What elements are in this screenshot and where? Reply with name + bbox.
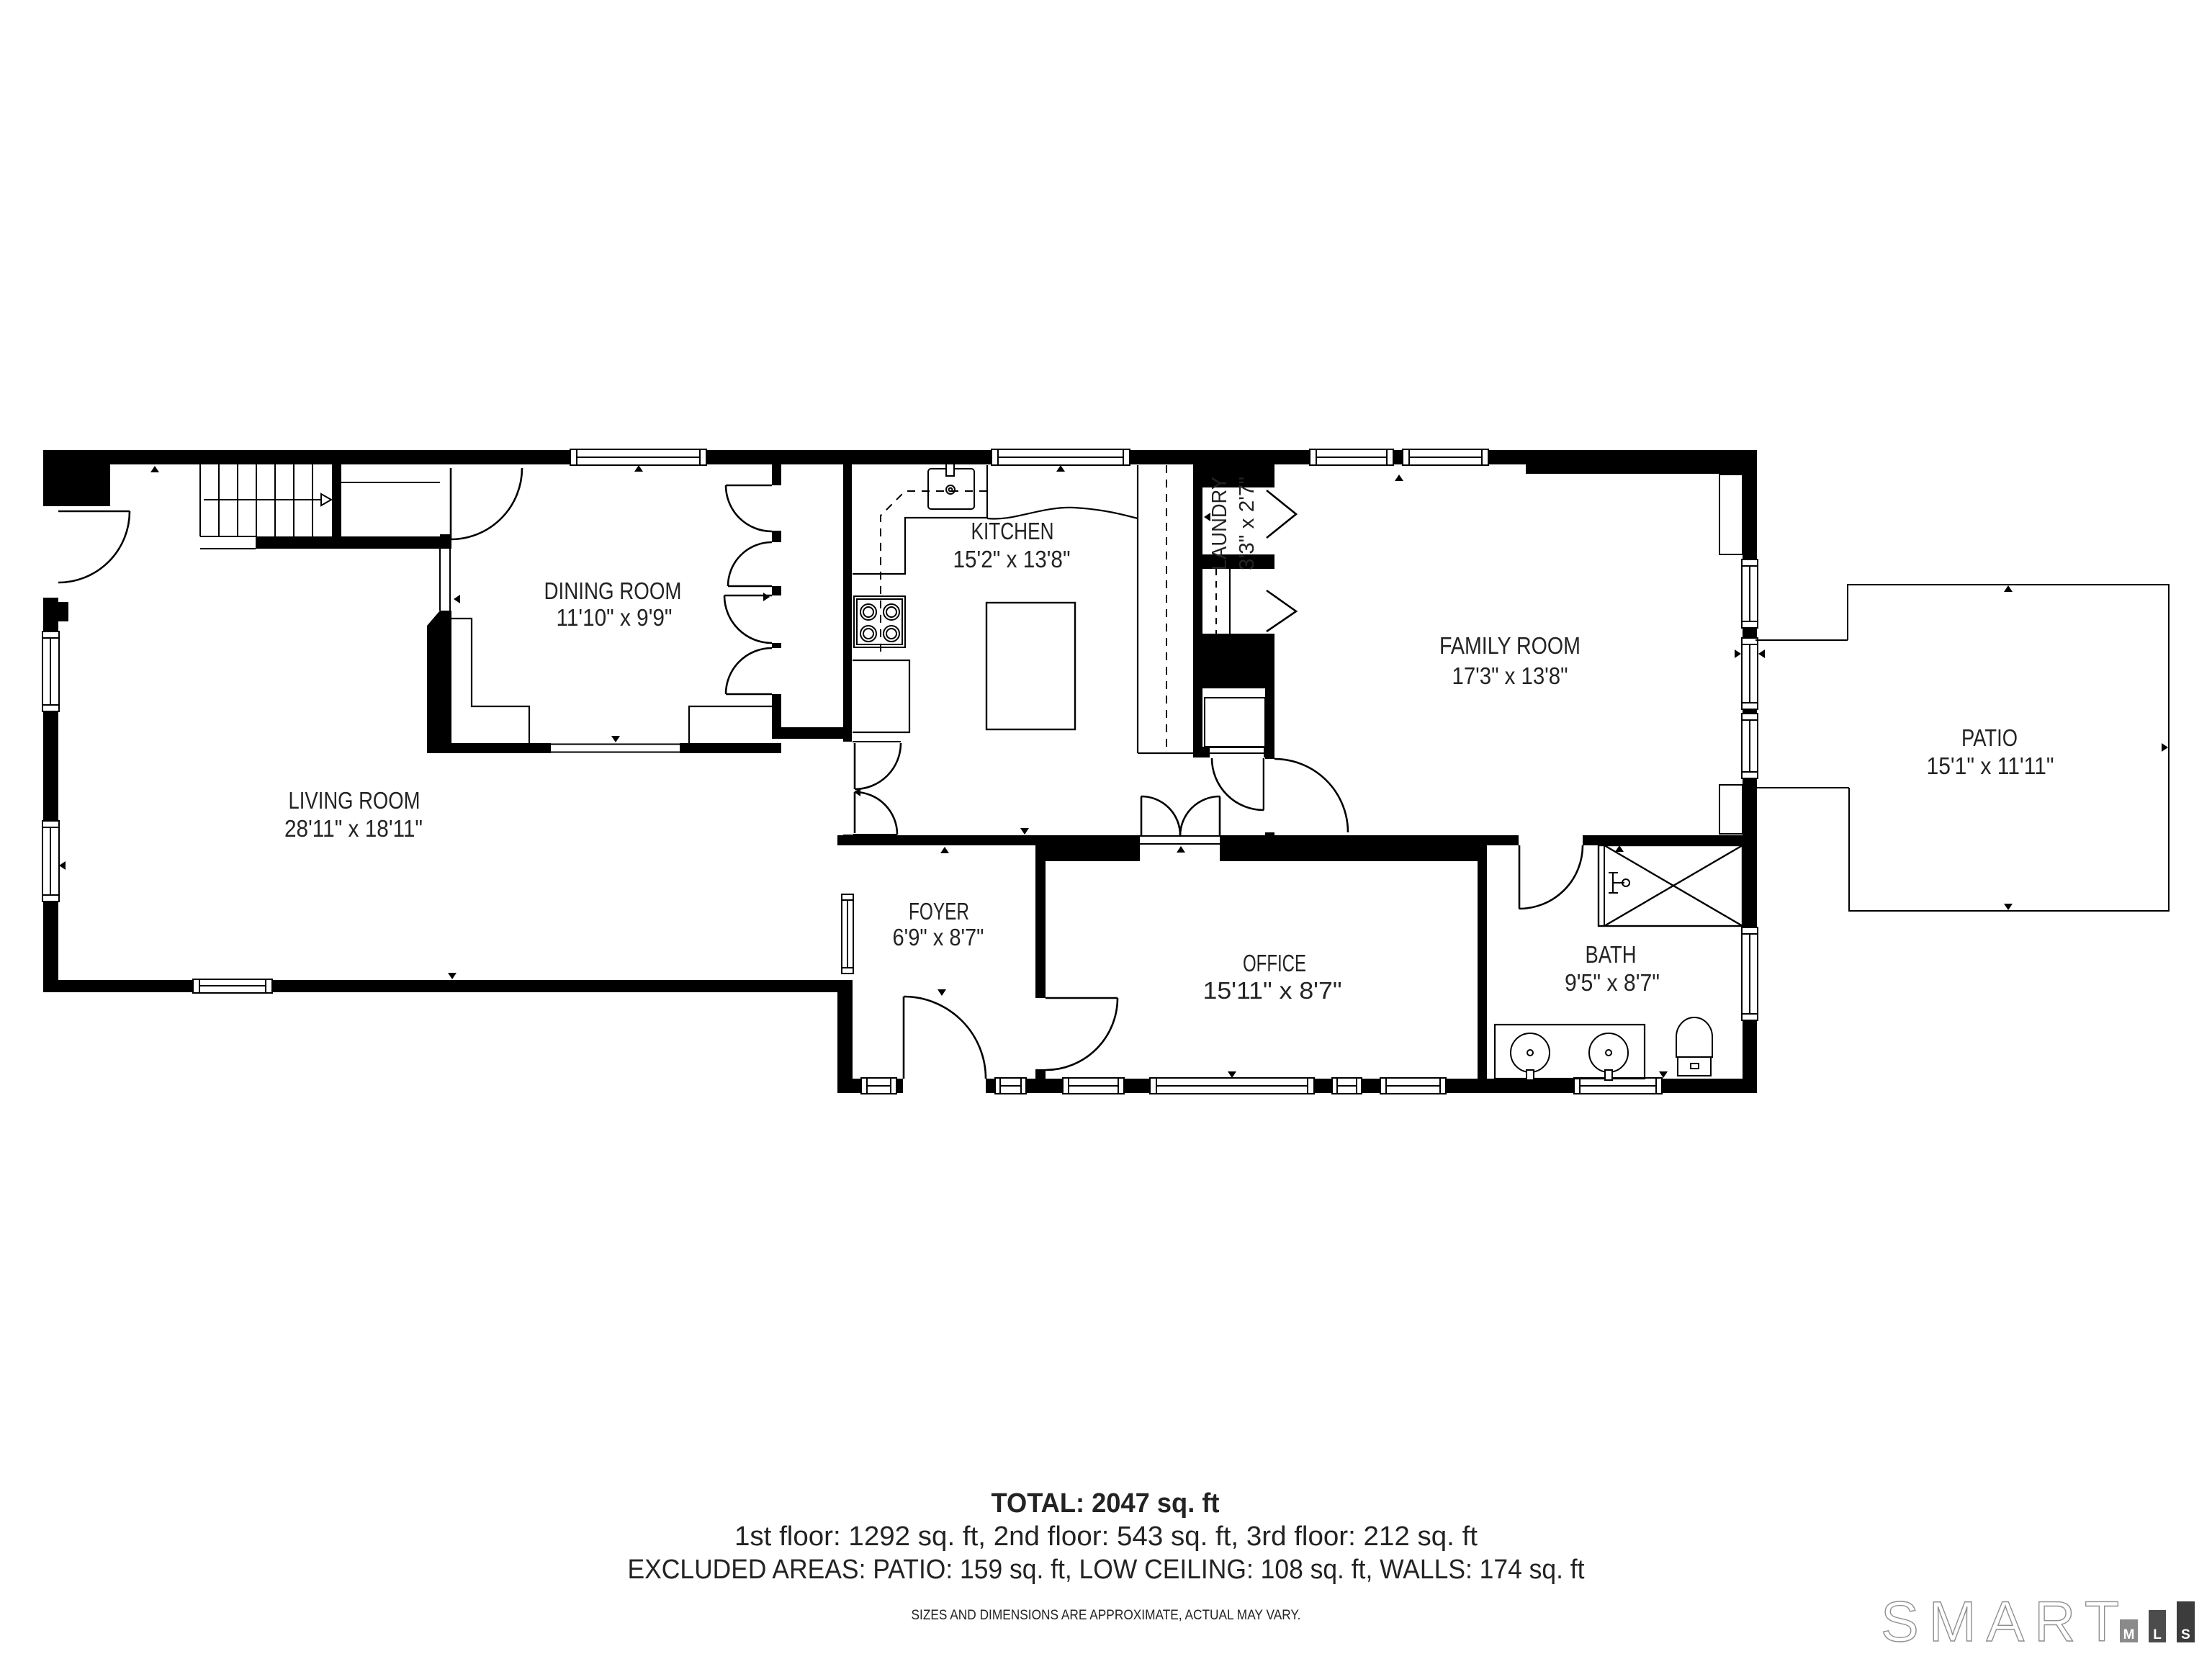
svg-text:DINING ROOM: DINING ROOM xyxy=(544,577,682,604)
svg-text:11'10" x 9'9": 11'10" x 9'9" xyxy=(557,604,673,631)
svg-text:SIZES AND DIMENSIONS ARE APPRO: SIZES AND DIMENSIONS ARE APPROXIMATE, AC… xyxy=(912,1608,1301,1623)
svg-text:BATH: BATH xyxy=(1586,941,1637,968)
svg-text:6'9" x 8'7": 6'9" x 8'7" xyxy=(893,924,984,950)
svg-text:15'11" x 8'7": 15'11" x 8'7" xyxy=(1203,977,1342,1004)
svg-text:S: S xyxy=(2181,1627,2190,1642)
svg-text:3'3" x 2'7": 3'3" x 2'7" xyxy=(1236,477,1259,570)
svg-text:15'1" x 11'11": 15'1" x 11'11" xyxy=(1927,752,2054,779)
svg-text:PATIO: PATIO xyxy=(1961,724,2018,751)
svg-text:9'5" x 8'7": 9'5" x 8'7" xyxy=(1565,969,1660,996)
svg-text:FOYER: FOYER xyxy=(909,898,969,925)
svg-text:L: L xyxy=(2153,1627,2162,1642)
svg-text:M: M xyxy=(2123,1627,2135,1642)
svg-text:TOTAL: 2047 sq. ft: TOTAL: 2047 sq. ft xyxy=(992,1488,1220,1519)
svg-text:1st floor: 1292 sq. ft, 2nd fl: 1st floor: 1292 sq. ft, 2nd floor: 543 s… xyxy=(734,1521,1478,1552)
svg-text:FAMILY ROOM: FAMILY ROOM xyxy=(1439,632,1581,659)
svg-text:KITCHEN: KITCHEN xyxy=(971,518,1054,544)
svg-text:EXCLUDED AREAS: PATIO: 159 sq.: EXCLUDED AREAS: PATIO: 159 sq. ft, LOW C… xyxy=(628,1555,1585,1585)
svg-text:SMART: SMART xyxy=(1881,1589,2129,1653)
svg-text:LAUNDRY: LAUNDRY xyxy=(1208,477,1231,570)
svg-text:15'2" x 13'8": 15'2" x 13'8" xyxy=(953,546,1071,572)
svg-text:OFFICE: OFFICE xyxy=(1243,950,1306,976)
svg-text:17'3" x 13'8": 17'3" x 13'8" xyxy=(1452,662,1568,689)
svg-text:28'11" x 18'11": 28'11" x 18'11" xyxy=(284,815,423,842)
svg-text:LIVING ROOM: LIVING ROOM xyxy=(289,787,421,814)
